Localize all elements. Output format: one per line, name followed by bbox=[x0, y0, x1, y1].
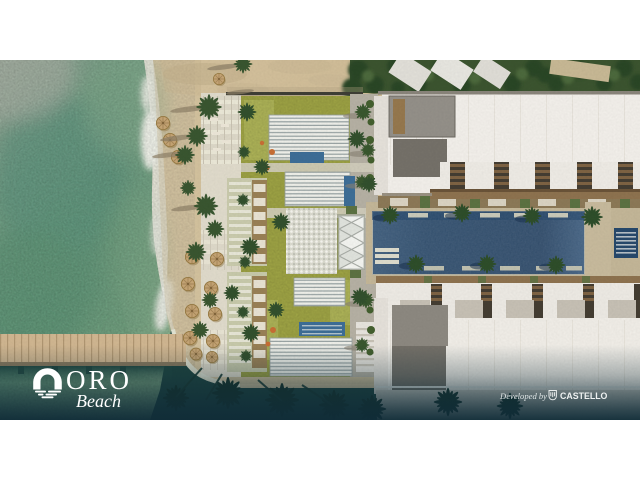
svg-text:Developed by: Developed by bbox=[499, 391, 547, 401]
svg-text:Beach: Beach bbox=[76, 391, 121, 411]
svg-text:CASTELLO: CASTELLO bbox=[560, 391, 608, 401]
